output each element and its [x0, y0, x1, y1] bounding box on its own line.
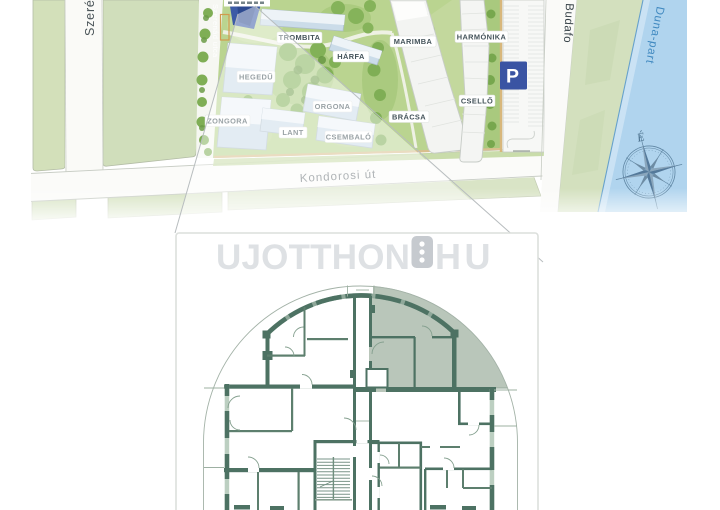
svg-text:UJOTTHON: UJOTTHON: [216, 238, 410, 277]
svg-text:Szerenád utca: Szerenád utca: [211, 4, 220, 58]
svg-text:Szerémi út: Szerémi út: [83, 0, 97, 36]
svg-text:HÁRFA: HÁRFA: [337, 52, 365, 61]
svg-text:MARIMBA: MARIMBA: [394, 37, 433, 46]
svg-text:Budafo: Budafo: [561, 3, 575, 44]
svg-text:HARMÓNIKA: HARMÓNIKA: [457, 33, 507, 42]
svg-text:CSELLŐ: CSELLŐ: [461, 97, 493, 106]
svg-text:HU: HU: [435, 236, 494, 277]
svg-text:BRÁCSA: BRÁCSA: [392, 113, 426, 122]
svg-text:P: P: [506, 66, 519, 88]
